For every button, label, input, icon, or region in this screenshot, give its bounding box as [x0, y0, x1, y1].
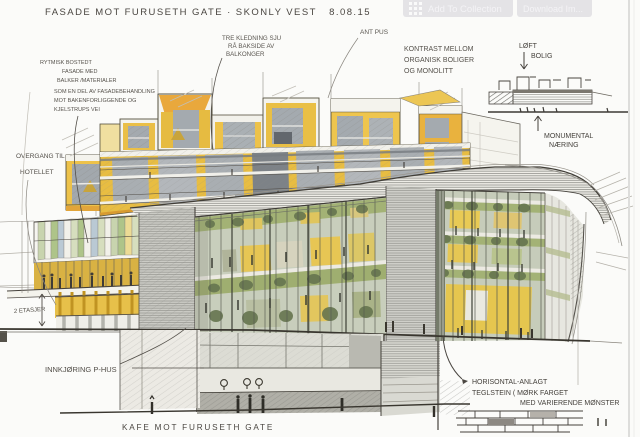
- svg-text:BALKONGER: BALKONGER: [226, 51, 265, 58]
- svg-text:MONUMENTAL: MONUMENTAL: [544, 133, 593, 140]
- svg-text:FASADE MED: FASADE MED: [62, 69, 97, 75]
- svg-text:Download Im...: Download Im...: [523, 4, 583, 14]
- svg-text:RYTMISK BOSTEDT: RYTMISK BOSTEDT: [40, 60, 92, 66]
- svg-text:OVERGANG TIL: OVERGANG TIL: [16, 153, 65, 160]
- svg-text:SOM EN DEL AV FASADEBEHANDLING: SOM EN DEL AV FASADEBEHANDLING: [54, 89, 155, 95]
- svg-text:TEGLSTEIN ( MØRK FARGET: TEGLSTEIN ( MØRK FARGET: [472, 390, 569, 397]
- svg-text:Add To Collection: Add To Collection: [428, 4, 502, 15]
- svg-text:ORGANISK BOLIGER: ORGANISK BOLIGER: [404, 57, 474, 64]
- svg-text:KAFE MOT FURUSETH GATE: KAFE MOT FURUSETH GATE: [122, 423, 274, 432]
- svg-text:BALKER /MATERIALER: BALKER /MATERIALER: [57, 78, 117, 84]
- svg-text:OG MONOLITT: OG MONOLITT: [404, 68, 454, 75]
- svg-text:KONTRAST MELLOM: KONTRAST MELLOM: [404, 46, 474, 53]
- svg-text:INNKJØRING P-HUS: INNKJØRING P-HUS: [45, 365, 117, 374]
- svg-text:ANT PUS: ANT PUS: [360, 29, 389, 36]
- svg-text:LØFT: LØFT: [519, 43, 538, 50]
- svg-text:RÅ BAKSIDE AV: RÅ BAKSIDE AV: [228, 43, 275, 50]
- svg-text:NÆRING: NÆRING: [549, 142, 579, 149]
- svg-text:KJELSTRUPS VEI: KJELSTRUPS VEI: [54, 107, 100, 113]
- svg-text:TRE KLEDNING SJU: TRE KLEDNING SJU: [222, 35, 281, 42]
- svg-text:MOT BAKENFORLIGGENDE OG: MOT BAKENFORLIGGENDE OG: [54, 98, 136, 104]
- svg-text:MED VARIERENDE MØNSTER: MED VARIERENDE MØNSTER: [520, 400, 619, 407]
- svg-text:FASADE MOT FURUSETH GATE · SKO: FASADE MOT FURUSETH GATE · SKONLY VEST 8…: [45, 7, 371, 18]
- svg-text:HORISONTAL-ANLAGT: HORISONTAL-ANLAGT: [472, 379, 548, 386]
- svg-text:HOTELLET: HOTELLET: [20, 169, 54, 176]
- svg-text:BOLIG: BOLIG: [531, 53, 552, 60]
